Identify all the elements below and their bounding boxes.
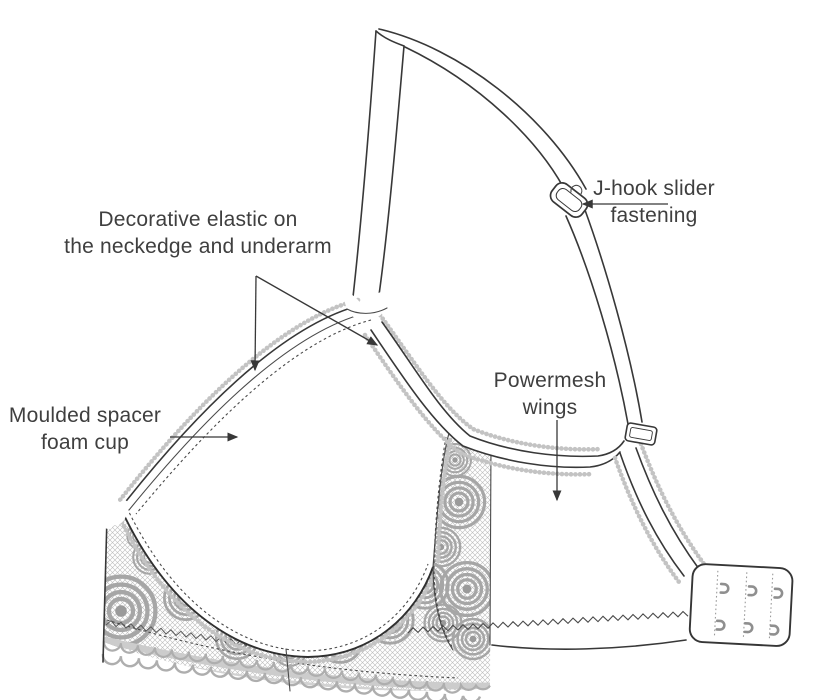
label-line: Powermesh: [476, 367, 624, 394]
label-line: the neckedge and underarm: [46, 233, 350, 260]
label-line: wings: [476, 394, 624, 421]
label-line: J-hook slider: [576, 175, 732, 202]
label-line: Decorative elastic on: [46, 206, 350, 233]
label-line: foam cup: [0, 429, 170, 456]
label-line: fastening: [576, 202, 732, 229]
bra-diagram: Decorative elastic on the neckedge and u…: [0, 0, 839, 700]
label-j-hook-slider: J-hook slider fastening: [576, 175, 732, 229]
strap-ring: [625, 423, 658, 446]
label-line: Moulded spacer: [0, 402, 170, 429]
label-powermesh-wings: Powermesh wings: [476, 367, 624, 421]
bra-illustration: [0, 0, 839, 700]
label-decorative-elastic: Decorative elastic on the neckedge and u…: [46, 206, 350, 260]
label-moulded-spacer-foam-cup: Moulded spacer foam cup: [0, 402, 170, 456]
hook-eye-closure: [689, 563, 793, 646]
